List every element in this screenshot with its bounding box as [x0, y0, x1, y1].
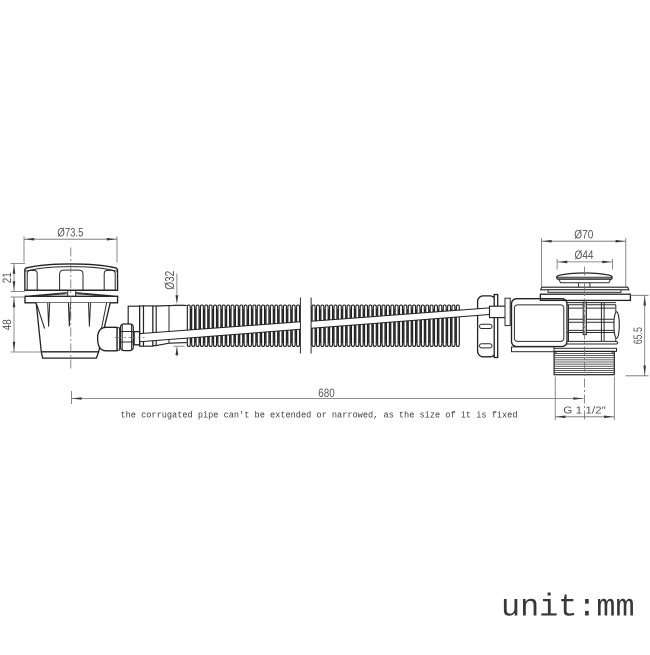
svg-text:Ø44: Ø44: [575, 250, 595, 262]
svg-text:unit:mm: unit:mm: [501, 590, 635, 626]
svg-text:G 1 1/2″: G 1 1/2″: [563, 404, 606, 416]
svg-text:21: 21: [2, 272, 14, 283]
svg-text:Ø73.5: Ø73.5: [57, 228, 83, 240]
svg-text:48: 48: [2, 319, 14, 330]
svg-text:680: 680: [318, 386, 335, 400]
svg-text:Ø32: Ø32: [163, 271, 177, 290]
svg-text:65.5: 65.5: [633, 327, 645, 344]
svg-text:the corrugated pipe can't be e: the corrugated pipe can't be extended or…: [121, 410, 518, 421]
svg-text:Ø70: Ø70: [574, 229, 593, 241]
